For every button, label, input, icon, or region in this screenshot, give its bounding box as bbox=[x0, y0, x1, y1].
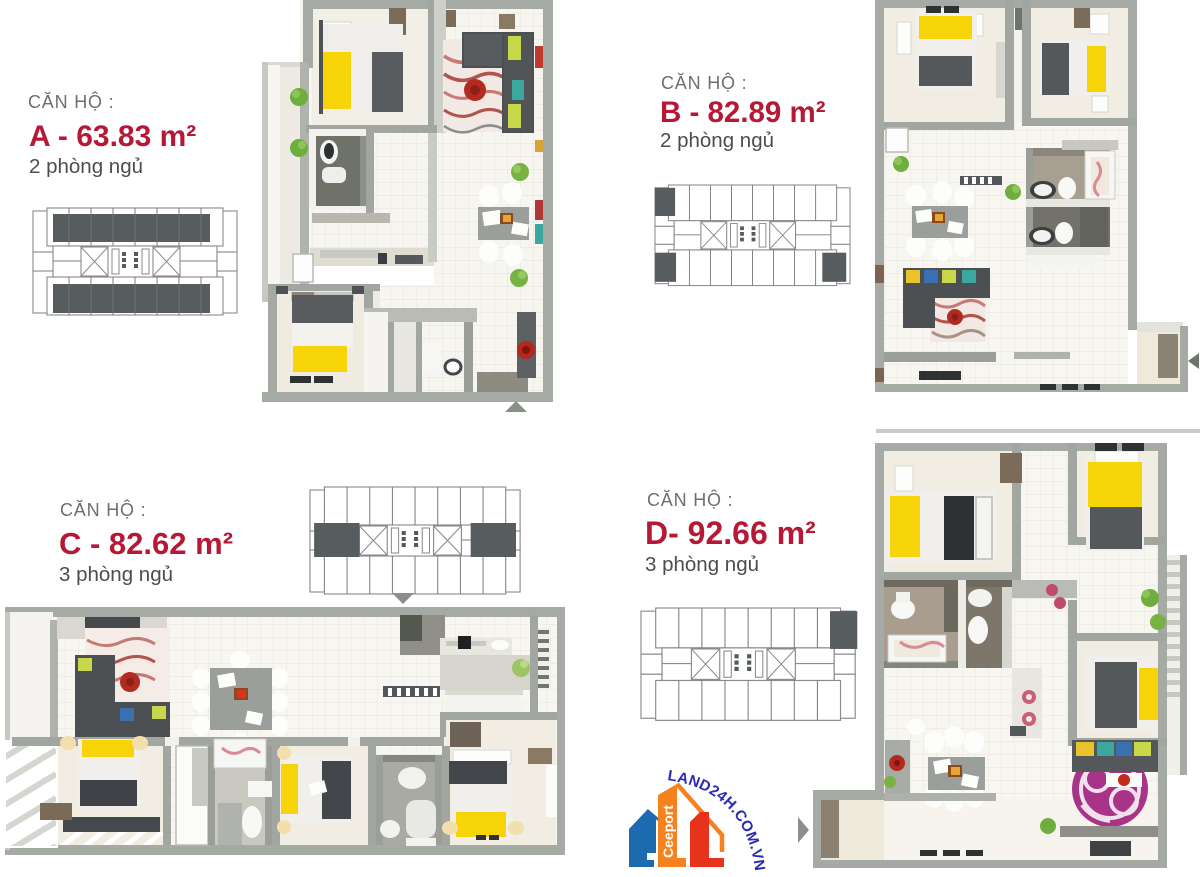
svg-text:B - 82.89 m²: B - 82.89 m² bbox=[660, 96, 826, 129]
svg-text:A - 63.83 m²: A - 63.83 m² bbox=[29, 120, 196, 153]
svg-text:2 phòng ngủ: 2 phòng ngủ bbox=[660, 129, 774, 152]
svg-text:C - 82.62 m²: C - 82.62 m² bbox=[59, 526, 233, 561]
svg-text:Ceeport: Ceeport bbox=[660, 805, 676, 858]
svg-text:CĂN HỘ :: CĂN HỘ : bbox=[28, 91, 114, 112]
svg-text:D- 92.66 m²: D- 92.66 m² bbox=[645, 515, 816, 551]
svg-text:3 phòng ngủ: 3 phòng ngủ bbox=[59, 563, 173, 586]
svg-text:2 phòng ngủ: 2 phòng ngủ bbox=[29, 155, 143, 178]
svg-text:CĂN HỘ :: CĂN HỘ : bbox=[60, 499, 146, 520]
svg-text:3 phòng ngủ: 3 phòng ngủ bbox=[645, 553, 759, 576]
svg-text:LAND24H.COM.VN: LAND24H.COM.VN bbox=[667, 767, 769, 872]
svg-text:CĂN HỘ :: CĂN HỘ : bbox=[647, 489, 733, 510]
svg-text:CĂN HỘ :: CĂN HỘ : bbox=[661, 72, 747, 93]
